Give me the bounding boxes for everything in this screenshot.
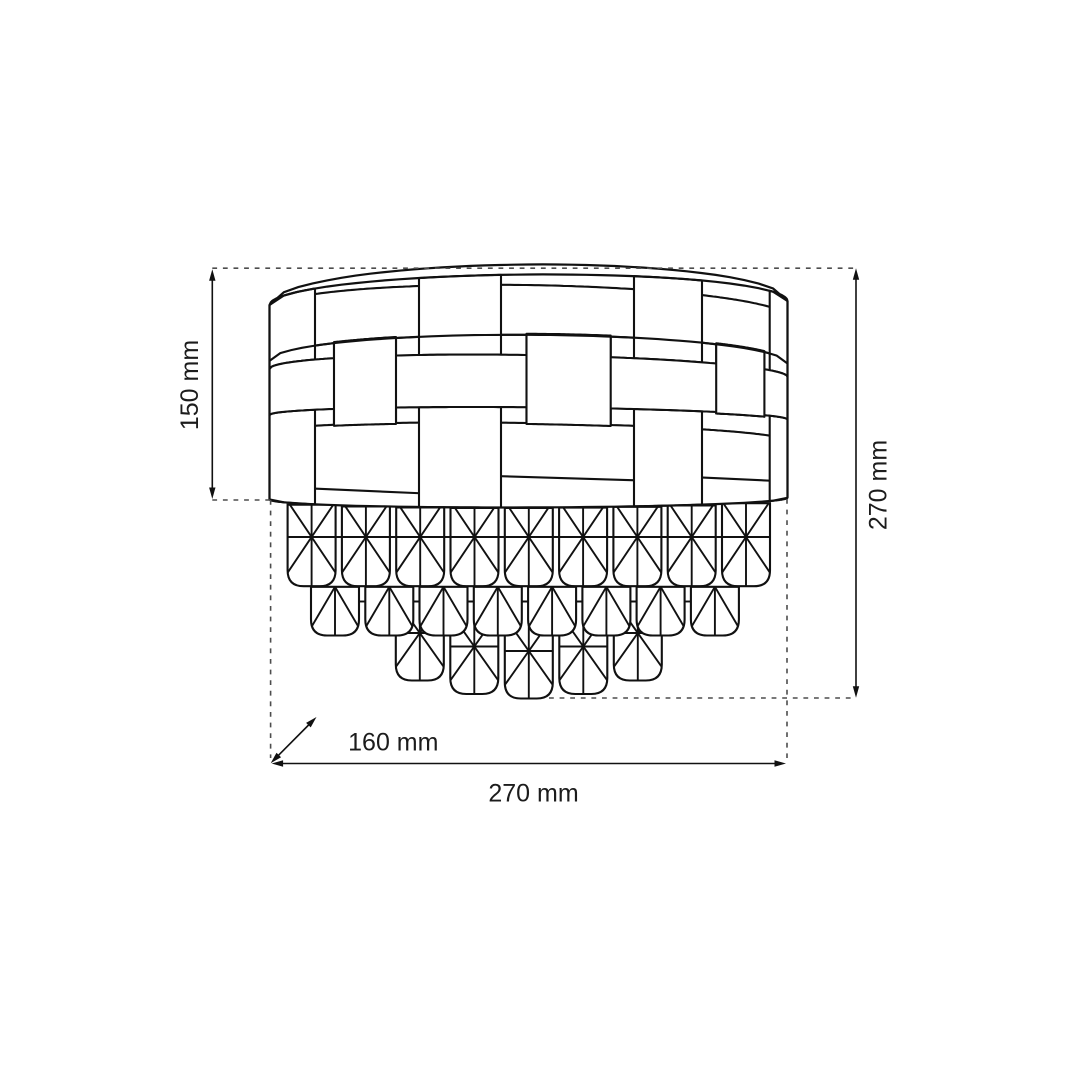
svg-text:270 mm: 270 mm	[865, 440, 893, 530]
svg-text:160 mm: 160 mm	[348, 729, 438, 757]
svg-text:270 mm: 270 mm	[488, 780, 578, 808]
svg-text:150 mm: 150 mm	[176, 340, 204, 430]
